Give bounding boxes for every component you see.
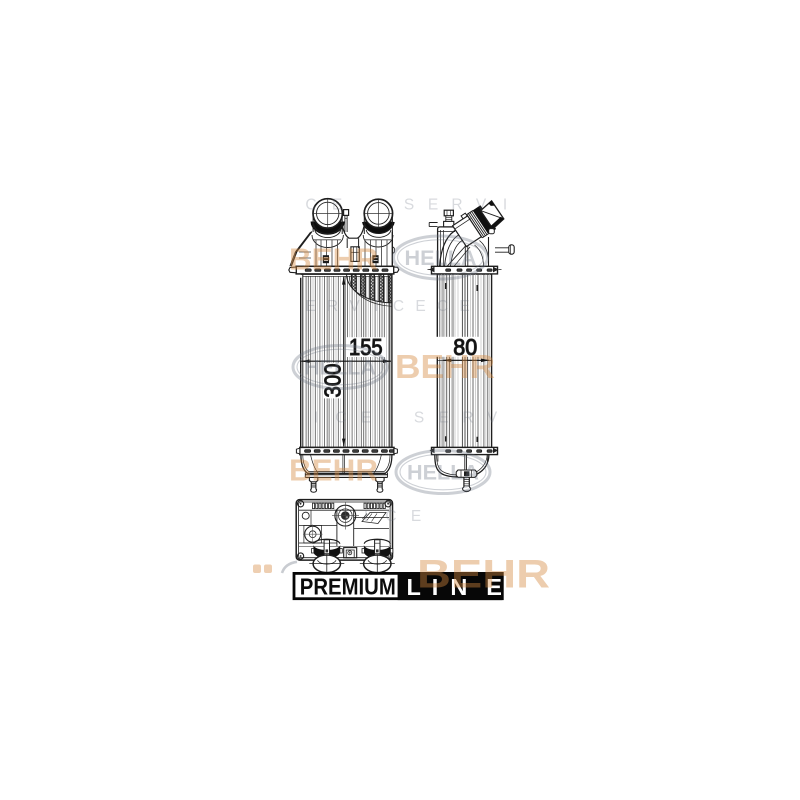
svg-text:E: E <box>305 298 315 315</box>
svg-text:S: S <box>404 197 414 214</box>
svg-text:E: E <box>428 197 438 214</box>
svg-text:C: C <box>305 197 316 214</box>
svg-text:I: I <box>364 508 368 525</box>
svg-text:HELLA: HELLA <box>304 356 376 379</box>
svg-text:R: R <box>327 298 338 315</box>
svg-text:BEHR: BEHR <box>417 553 550 597</box>
svg-text:HELLA: HELLA <box>405 247 477 270</box>
svg-text:I: I <box>374 298 378 315</box>
svg-text:I: I <box>503 197 507 214</box>
svg-text:C: C <box>393 298 404 315</box>
svg-text:C: C <box>437 298 448 315</box>
svg-text:V: V <box>487 410 498 427</box>
svg-text:E: E <box>361 410 371 427</box>
svg-text:PREMIUM: PREMIUM <box>300 574 396 600</box>
svg-text:BEHR: BEHR <box>395 349 495 386</box>
svg-text:V: V <box>476 197 487 214</box>
svg-text:E: E <box>332 197 342 214</box>
svg-text:C: C <box>385 508 396 525</box>
svg-text:E: E <box>415 298 425 315</box>
svg-text:E: E <box>459 298 469 315</box>
svg-text:I: I <box>314 410 318 427</box>
svg-text:S: S <box>414 410 424 427</box>
svg-text:HELLA: HELLA <box>407 461 479 484</box>
svg-text:E: E <box>438 410 448 427</box>
svg-text:V: V <box>349 298 360 315</box>
svg-text:E: E <box>411 508 421 525</box>
svg-text:BEHR: BEHR <box>289 454 378 488</box>
svg-text:R: R <box>462 410 473 427</box>
svg-text:C: C <box>335 410 346 427</box>
svg-text:BEHR: BEHR <box>289 243 378 277</box>
svg-text:R: R <box>451 197 462 214</box>
